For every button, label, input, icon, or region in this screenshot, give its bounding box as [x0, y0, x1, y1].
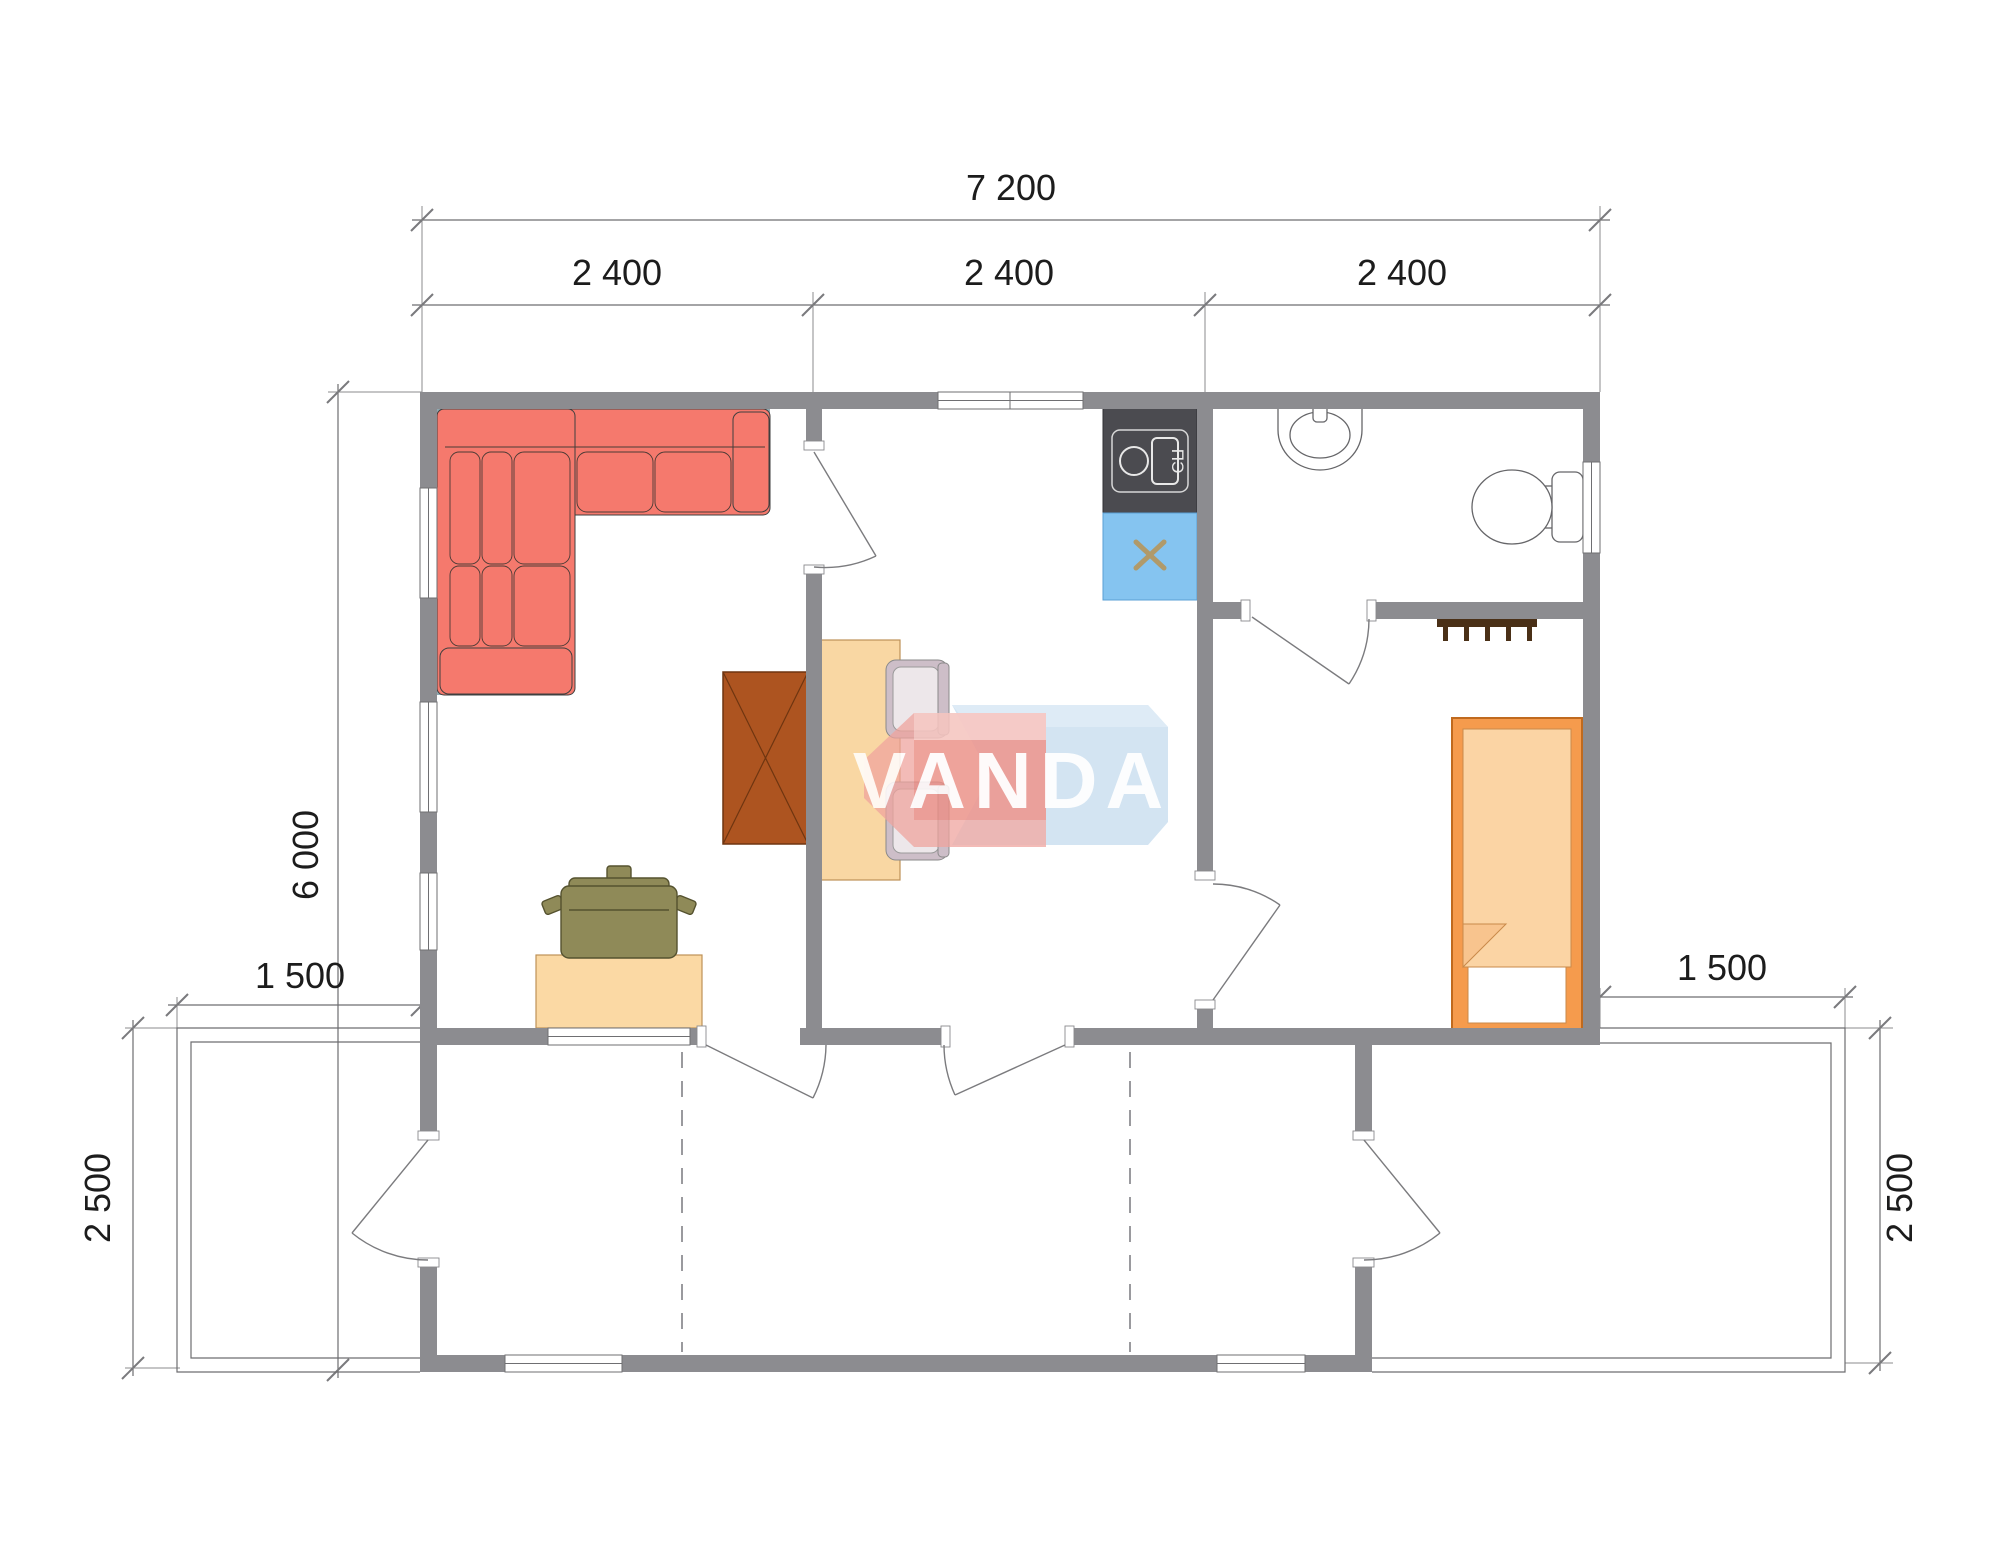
desk-icon: [536, 955, 702, 1028]
door-icon: [706, 1045, 826, 1098]
dim-left-height: 6 000: [285, 810, 326, 900]
door-icon: [1252, 617, 1369, 684]
dim-module-2: 2 400: [964, 252, 1054, 293]
corner-sofa-icon: [437, 409, 770, 695]
window-icon: [420, 702, 437, 812]
window-icon: [420, 873, 437, 950]
wardrobe-icon: [723, 672, 808, 844]
coat-hooks-icon: [1437, 619, 1537, 641]
window-icon: [505, 1355, 622, 1372]
dim-top-total: 7 200: [966, 167, 1056, 208]
terrace-right-deck: [1372, 1028, 1845, 1372]
door-icon: [1213, 884, 1280, 1000]
door-icon: [1364, 1140, 1440, 1260]
dim-right-terrace-width: 1 500: [1677, 947, 1767, 988]
window-icon: [548, 1028, 690, 1045]
dim-left-terrace-depth: 2 500: [77, 1153, 118, 1243]
kitchen-sink-cabinet-icon: [1103, 513, 1197, 600]
dim-module-3: 2 400: [1357, 252, 1447, 293]
floor-plan-canvas: 7 200 2 400 2 400 2 400 6 000 1 500 2 50…: [0, 0, 2000, 1563]
window-icon: [938, 392, 1083, 409]
vanda-watermark-text: VANDA: [853, 736, 1172, 825]
window-icon: [1583, 462, 1600, 553]
bed-icon: [1452, 718, 1582, 1043]
dim-right-terrace-depth: 2 500: [1879, 1153, 1920, 1243]
door-icon: [814, 452, 876, 568]
kitchen-counter-stove-icon: ПЭ: [1103, 408, 1197, 513]
window-icon: [1217, 1355, 1305, 1372]
door-icon: [352, 1140, 428, 1260]
toilet-icon: [1472, 470, 1583, 544]
window-icon: [420, 488, 437, 598]
stove-label: ПЭ: [1168, 449, 1187, 473]
vanda-watermark: VANDA: [853, 705, 1172, 847]
floor-plan-drawing: 7 200 2 400 2 400 2 400 6 000 1 500 2 50…: [0, 0, 2000, 1563]
dim-left-terrace-width: 1 500: [255, 955, 345, 996]
dim-module-1: 2 400: [572, 252, 662, 293]
terrace-left-deck: [177, 1028, 420, 1372]
door-icon: [944, 1045, 1065, 1095]
veranda-module-lines: [682, 1052, 1130, 1352]
office-chair-icon: [541, 866, 697, 958]
